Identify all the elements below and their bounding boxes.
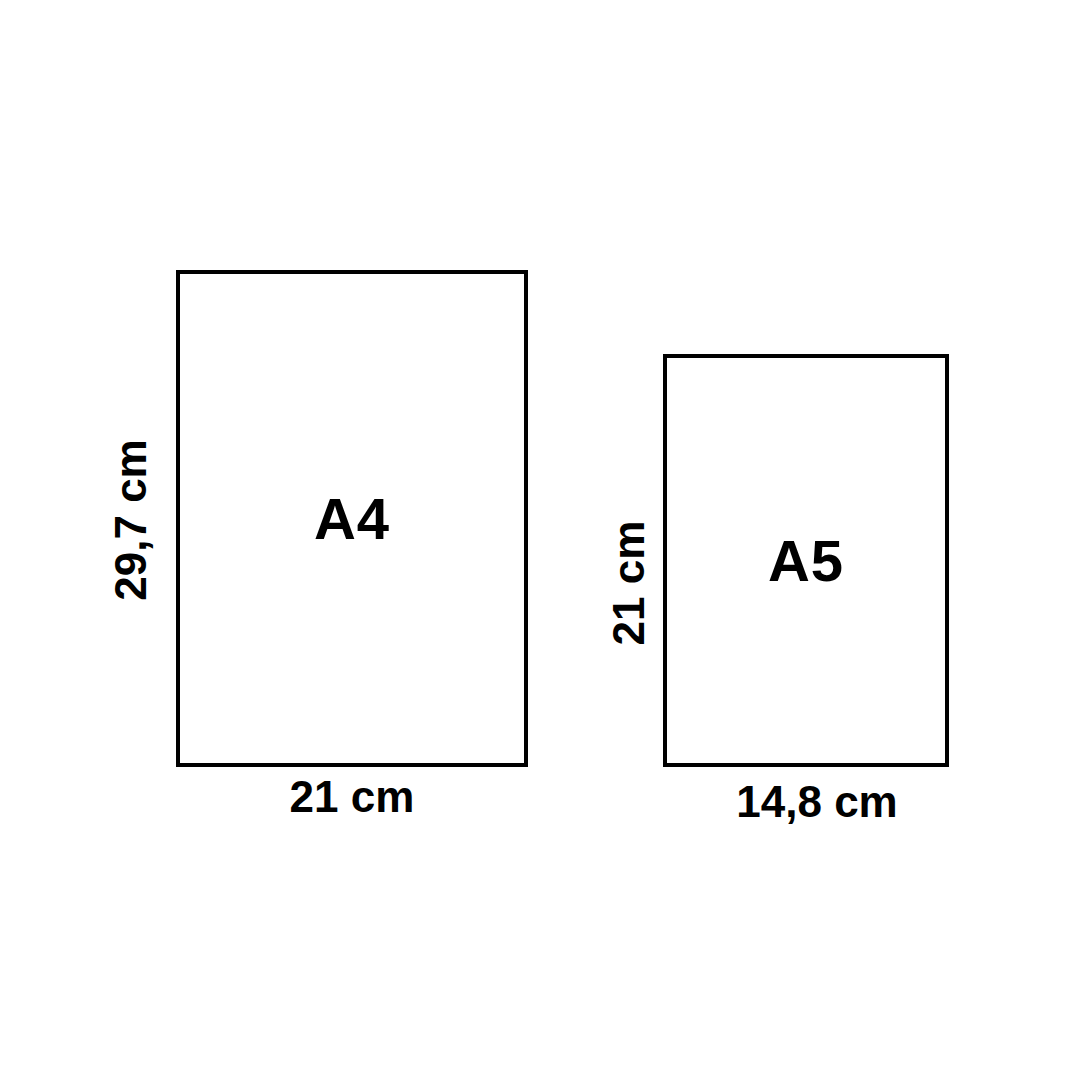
a4-sheet-rectangle: A4 <box>176 270 528 767</box>
a4-height-dimension-label: 29,7 cm <box>109 439 153 600</box>
a5-width-dimension-label: 14,8 cm <box>736 780 897 824</box>
a5-sheet-rectangle: A5 <box>663 354 949 767</box>
a5-sheet-label: A5 <box>768 532 844 590</box>
a5-height-dimension-label: 21 cm <box>607 521 651 646</box>
a4-sheet-label: A4 <box>314 490 390 548</box>
paper-size-comparison-diagram: A4 29,7 cm 21 cm A5 21 cm 14,8 cm <box>0 0 1080 1080</box>
a4-width-dimension-label: 21 cm <box>290 775 415 819</box>
